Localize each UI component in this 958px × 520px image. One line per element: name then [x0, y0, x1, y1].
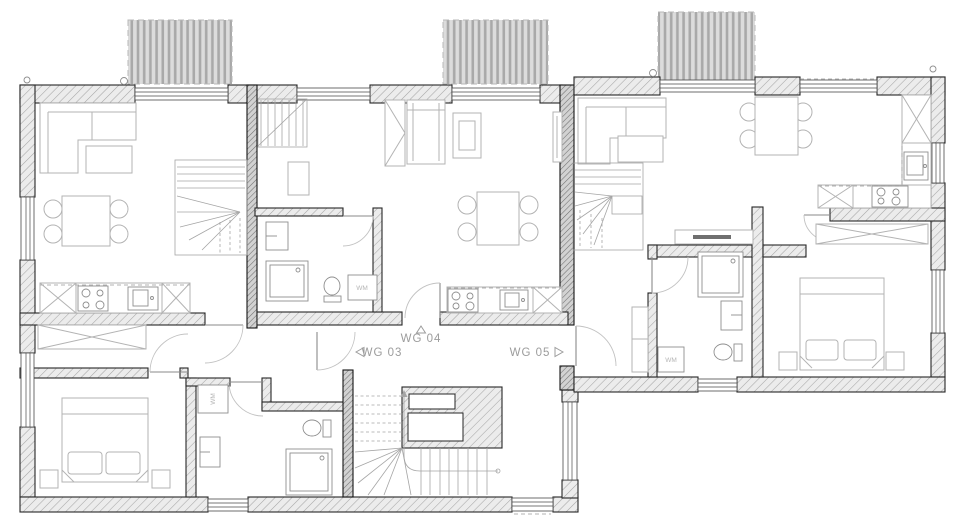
- door-wg05-bath: [652, 257, 688, 293]
- downpipe-icon: [121, 78, 128, 85]
- kitchen-counter: [818, 95, 931, 208]
- balcony-door-wg04: [452, 88, 540, 100]
- kitchen-counter: [40, 283, 190, 313]
- internal-stair-wg03: [175, 160, 247, 255]
- coffee-table: [618, 136, 663, 162]
- balconies: [128, 12, 755, 84]
- door-wg04-entrance: [405, 283, 440, 318]
- double-bed: [40, 398, 170, 488]
- wall-wg03-wg04: [247, 85, 257, 328]
- window-wg05-bedroom: [932, 270, 944, 333]
- entrance-arrow-up-icon: [417, 326, 426, 333]
- dining-table: [44, 196, 128, 246]
- washing-machine: WM: [198, 385, 228, 413]
- internal-stair-wg05: [573, 163, 643, 250]
- wardrobe: [385, 100, 405, 166]
- double-bed: [779, 278, 904, 370]
- bath-sink: [200, 437, 220, 467]
- bath-sink: [721, 301, 742, 330]
- nightstand: [886, 352, 904, 370]
- kitchen-counter: [447, 287, 562, 313]
- balcony-wg03: [128, 20, 232, 84]
- nightstand: [152, 470, 170, 488]
- door-wg03-corridor: [205, 325, 243, 363]
- toilet: [324, 277, 341, 302]
- wm-label-wg03: WM: [210, 393, 217, 405]
- window-stairwell: [563, 402, 577, 480]
- shower: [698, 252, 743, 297]
- unit-label-wg03: WG 03: [362, 347, 403, 359]
- downpipe-icon: [930, 66, 936, 72]
- kitchen-sink: [500, 290, 528, 310]
- building-entrance-door: [512, 498, 553, 514]
- window-wg03-bedroom: [21, 353, 34, 427]
- internal-stair-wg04: [258, 99, 307, 147]
- dining-table: [458, 192, 538, 245]
- door-wg03-bedroom: [150, 334, 188, 372]
- kitchen-sink: [128, 287, 158, 310]
- apartment-wg04: WM: [258, 99, 562, 313]
- washing-machine: WM: [348, 275, 377, 300]
- balcony-door-wg05: [660, 80, 755, 92]
- downpipe-icon: [650, 70, 657, 77]
- bathroom-wg04: WM: [266, 222, 377, 302]
- shower: [266, 261, 308, 301]
- bedroom-wardrobe: [816, 224, 928, 244]
- nightstand: [40, 470, 58, 488]
- floor-plan-page: WM: [0, 0, 958, 520]
- wm-label-wg05: WM: [665, 357, 677, 364]
- nightstand: [779, 352, 797, 370]
- shower: [286, 449, 332, 495]
- kitchen-sink: [904, 152, 928, 180]
- unit-labels: WG 03 WG 04 WG 05: [356, 326, 563, 359]
- unit-label-wg05: WG 05: [510, 347, 551, 359]
- window-wg04-stair: [297, 88, 370, 100]
- balcony-wg04: [443, 20, 548, 84]
- door-wg03-bath: [229, 382, 263, 416]
- window-wg05-bath: [698, 379, 737, 391]
- window-wg03-bath: [208, 499, 248, 511]
- sofa-bed: [407, 100, 445, 164]
- unit-label-wg04: WG 04: [401, 333, 442, 345]
- door-wg04-bath: [343, 216, 373, 246]
- tv-sideboard: [675, 230, 753, 244]
- stairwell-wall: [343, 370, 353, 497]
- window-wg03-living: [21, 197, 34, 260]
- floor-plan-drawing: WM: [0, 0, 958, 520]
- toilet: [714, 344, 742, 361]
- entrance-arrow-right-icon: [555, 348, 563, 357]
- dining-table: [740, 97, 812, 155]
- balcony-door-wg03: [135, 88, 228, 100]
- hall-closet: [632, 307, 648, 372]
- wm-label-wg04: WM: [356, 285, 368, 292]
- balcony-wg05: [658, 12, 755, 80]
- corridor-wardrobe: [38, 325, 146, 349]
- window-wg05-sink: [932, 143, 944, 183]
- coffee-table: [86, 146, 132, 173]
- door-wg05-entrance: [576, 326, 616, 366]
- toilet: [303, 420, 331, 437]
- window-wg05-kitchen-top: [800, 79, 877, 92]
- bath-sink: [266, 222, 288, 250]
- washing-machine: WM: [658, 347, 684, 372]
- door-wg03-entrance: [317, 332, 355, 370]
- wall-panel: [553, 112, 562, 162]
- downpipe-icon: [24, 77, 30, 83]
- desk: [288, 162, 309, 195]
- bathroom-wg05: WM: [658, 252, 743, 372]
- tv-table: [453, 113, 481, 158]
